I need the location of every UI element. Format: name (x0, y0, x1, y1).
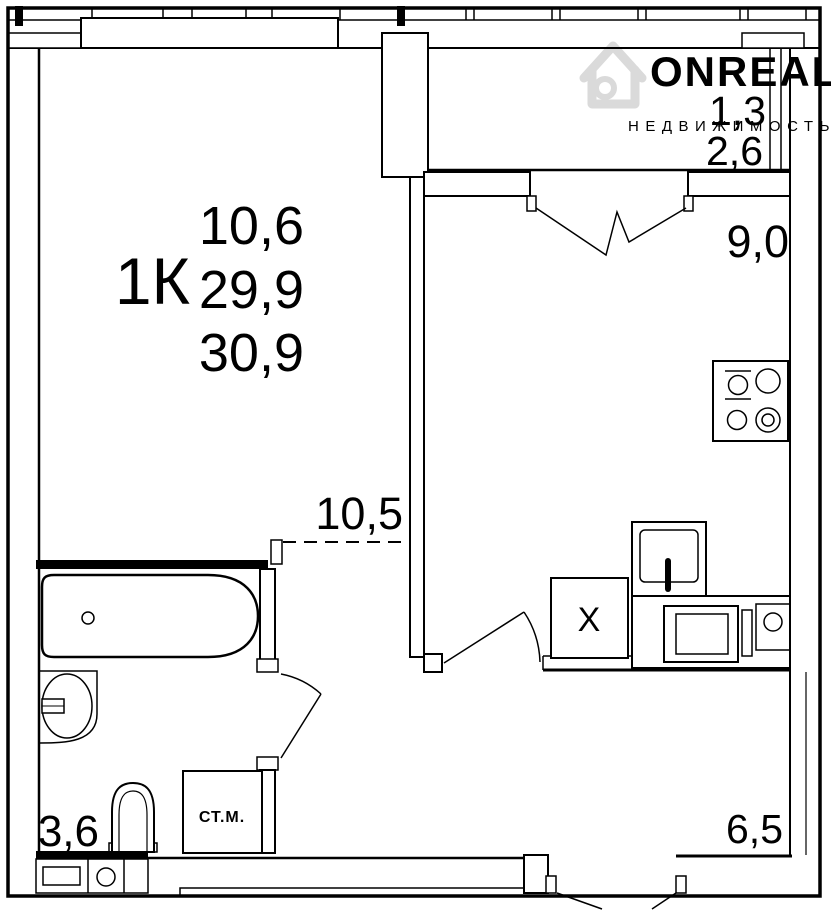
kitchen-window-sill-left (424, 172, 530, 196)
balcony-sill-right (742, 33, 804, 48)
bathroom-area-label: 3,6 (38, 807, 99, 856)
balcony-sill-left (9, 33, 81, 48)
toilet-icon (109, 783, 157, 852)
utility-shaft-boxes (36, 859, 148, 893)
kitchen-sink-icon (632, 522, 706, 596)
total-area-label: 30,9 (199, 323, 304, 383)
section-mark-mid (397, 6, 405, 26)
bathtub-icon (42, 575, 258, 657)
kitchen-counter (632, 596, 790, 668)
living-window-sill (81, 18, 338, 48)
bathroom-top-wall (36, 560, 268, 569)
living-area-label: 29,9 (199, 260, 304, 320)
balcony-full-area-label: 2,6 (706, 128, 763, 174)
section-mark-left (15, 6, 23, 26)
partition-wall (410, 177, 424, 657)
fridge-mark-label: X (578, 601, 601, 639)
unit-type-label: 1К (115, 244, 191, 318)
wall-pier (382, 33, 428, 177)
zone-area-label: 10,5 (315, 488, 403, 539)
kitchen-window-sill-right (688, 172, 790, 196)
kitchen-area-label: 9,0 (726, 216, 789, 267)
washing-machine-label: СТ.М. (199, 809, 245, 826)
hallway-area-label: 6,5 (726, 806, 783, 852)
stove-icon (713, 361, 788, 441)
floor-plan: ONREALT НЕДВИЖИМОСТЬ (0, 0, 831, 910)
room-area-label: 10,6 (199, 196, 304, 256)
